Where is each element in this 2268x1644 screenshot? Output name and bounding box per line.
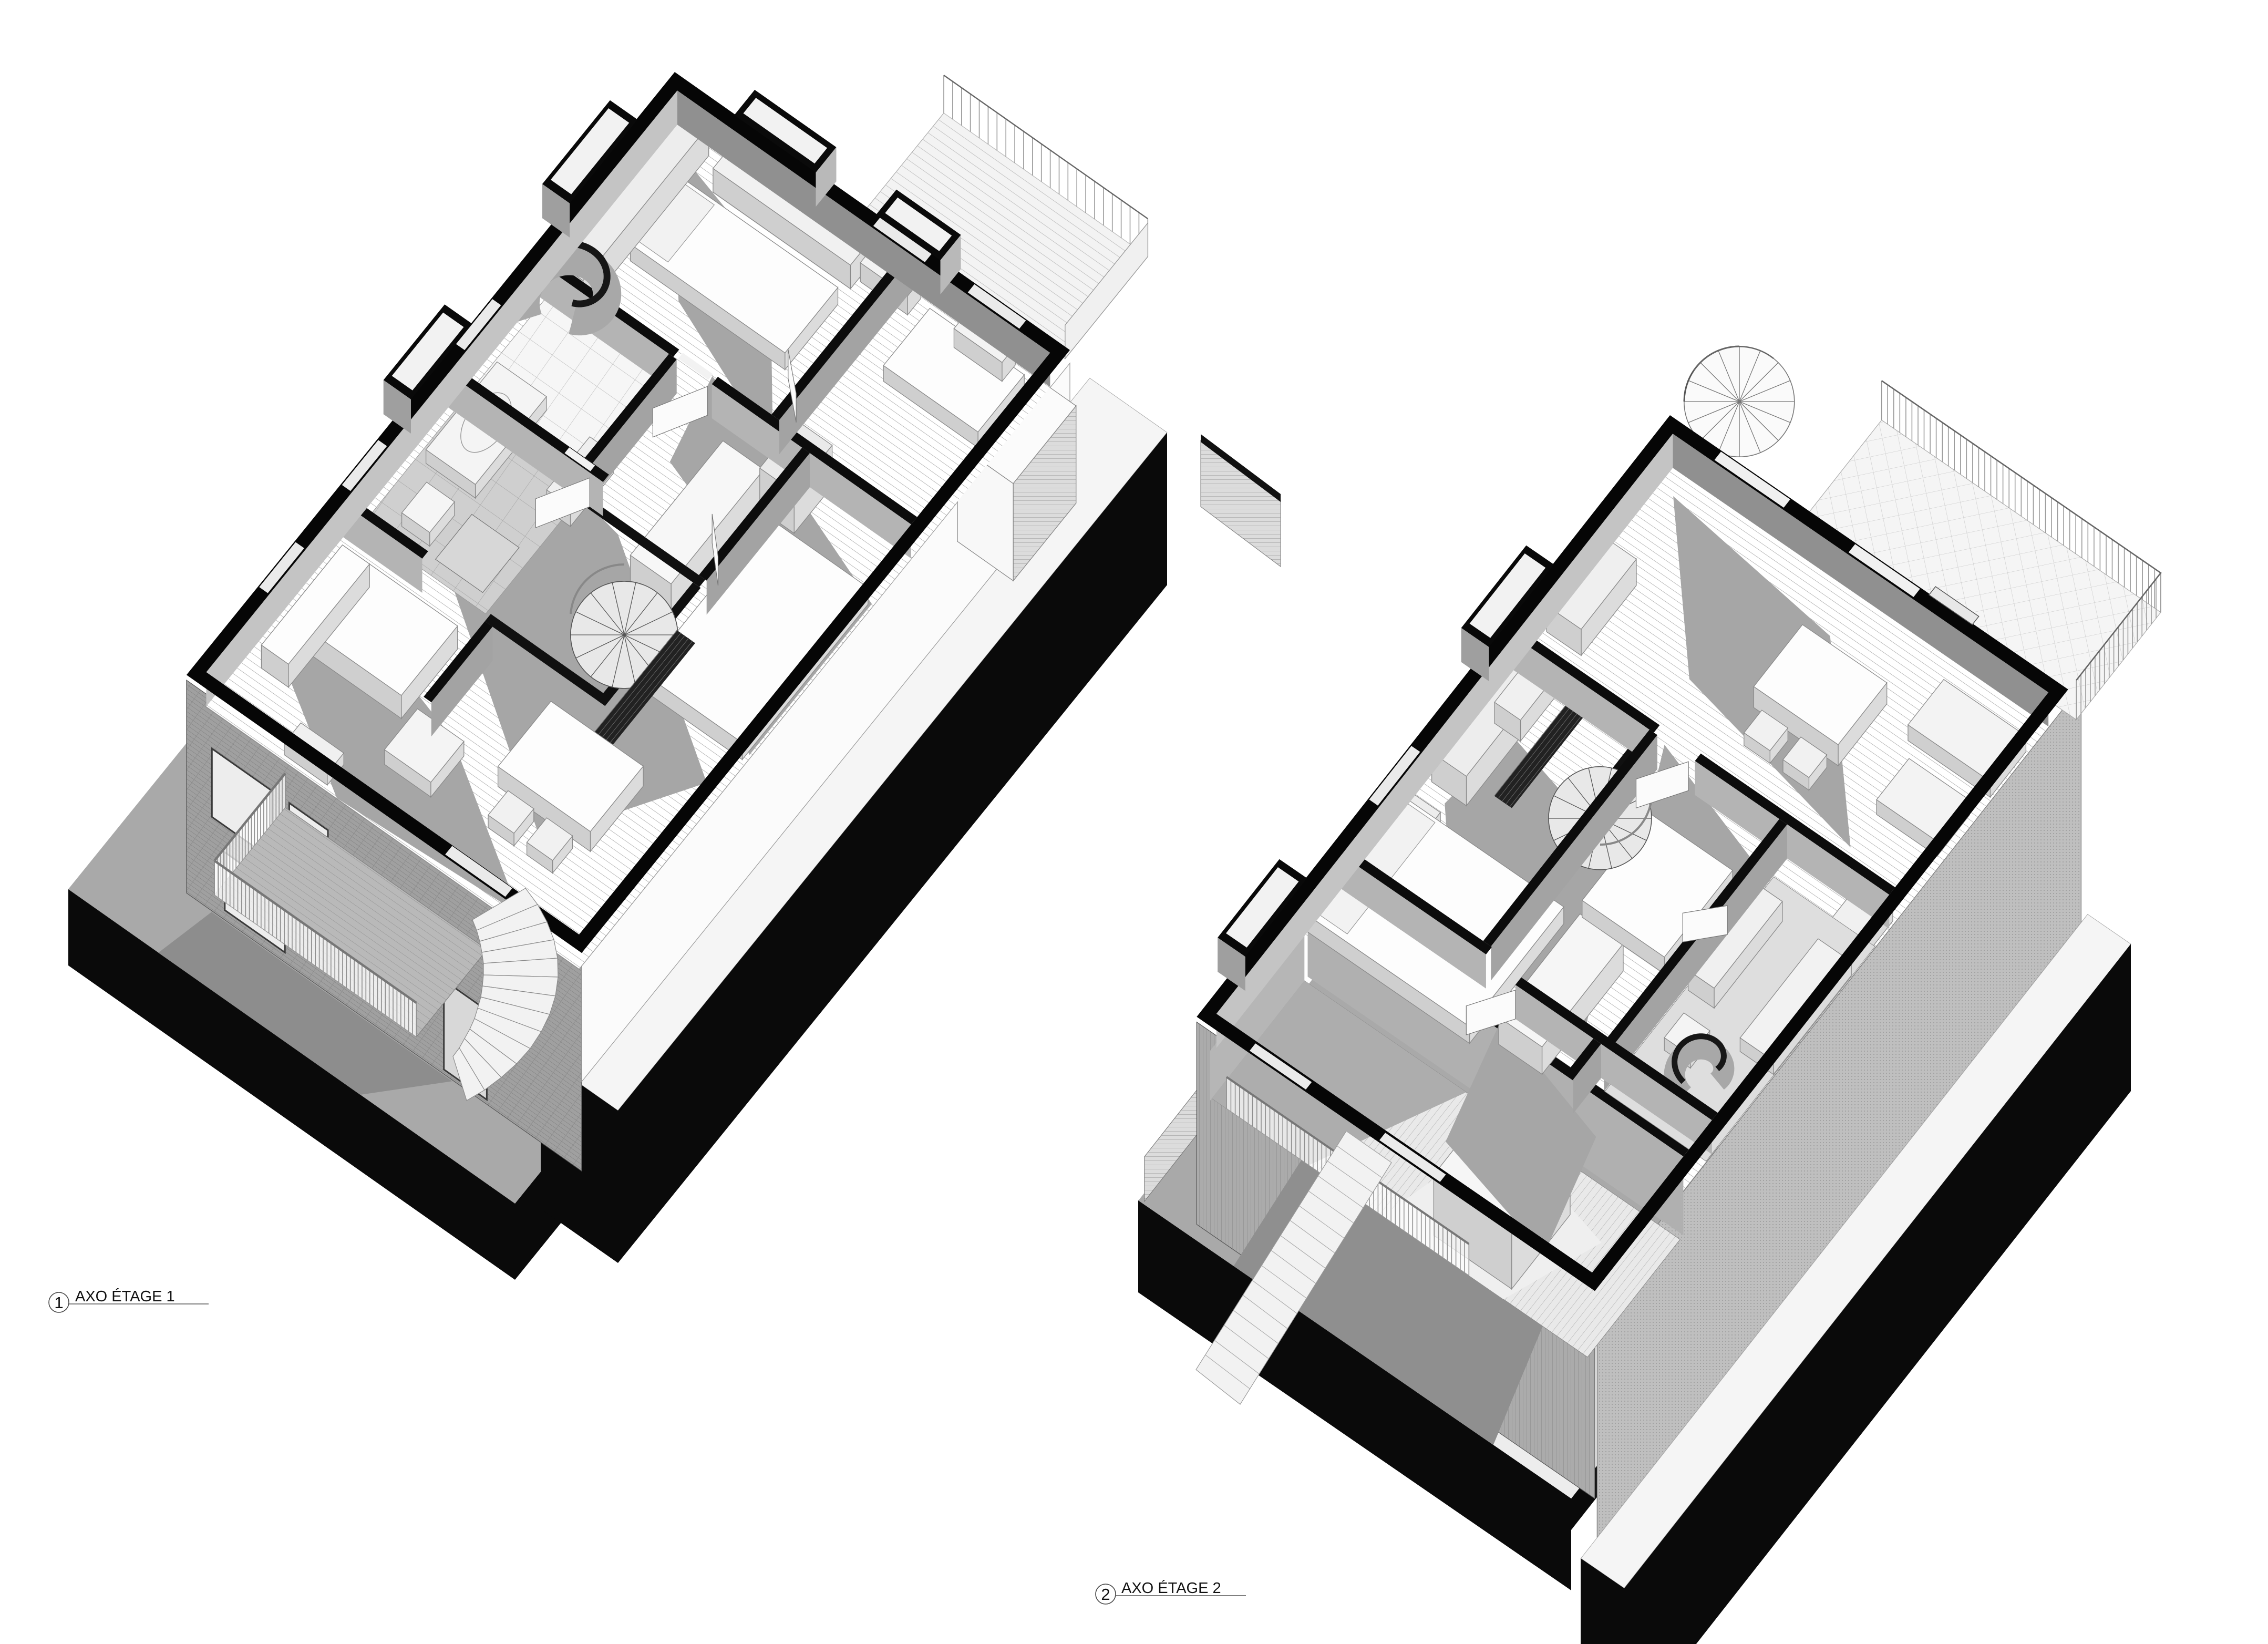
svg-text:2: 2 xyxy=(1101,1585,1110,1604)
svg-text:AXO ÉTAGE 2: AXO ÉTAGE 2 xyxy=(1121,1579,1221,1597)
svg-text:1: 1 xyxy=(54,1293,63,1312)
svg-text:AXO ÉTAGE 1: AXO ÉTAGE 1 xyxy=(75,1288,175,1305)
